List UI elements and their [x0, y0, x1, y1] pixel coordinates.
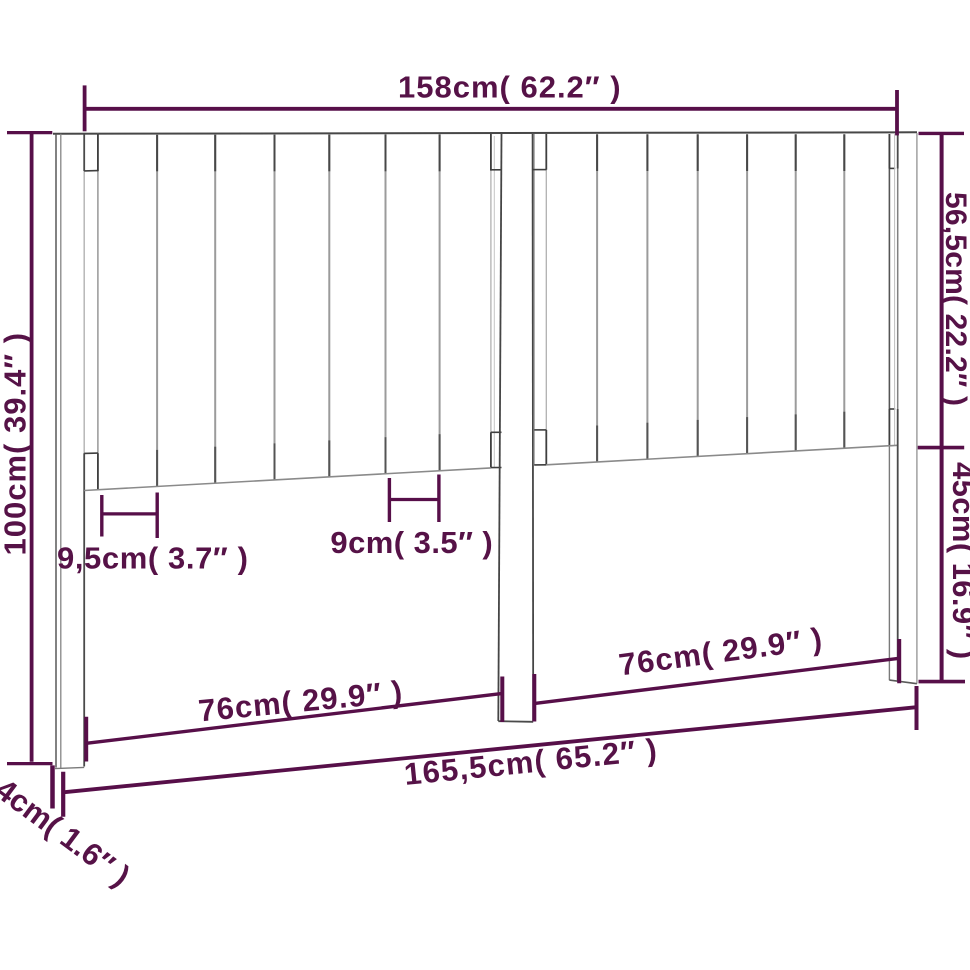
- svg-text:165,5cm( 65.2″ ): 165,5cm( 65.2″ ): [403, 732, 660, 792]
- svg-text:9,5cm( 3.7″ ): 9,5cm( 3.7″ ): [57, 541, 249, 576]
- svg-text:76cm( 29.9″ ): 76cm( 29.9″ ): [617, 621, 825, 683]
- svg-text:100cm( 39.4″ ): 100cm( 39.4″ ): [0, 332, 33, 556]
- svg-text:45cm( 16.9″ ): 45cm( 16.9″ ): [946, 462, 970, 660]
- svg-text:4cm( 1.6″ ): 4cm( 1.6″ ): [0, 771, 137, 893]
- svg-text:158cm( 62.2″ ): 158cm( 62.2″ ): [398, 69, 622, 104]
- svg-text:9cm( 3.5″ ): 9cm( 3.5″ ): [330, 525, 493, 560]
- svg-text:56,5cm( 22.2″ ): 56,5cm( 22.2″ ): [939, 192, 970, 406]
- svg-text:76cm( 29.9″ ): 76cm( 29.9″ ): [197, 674, 405, 729]
